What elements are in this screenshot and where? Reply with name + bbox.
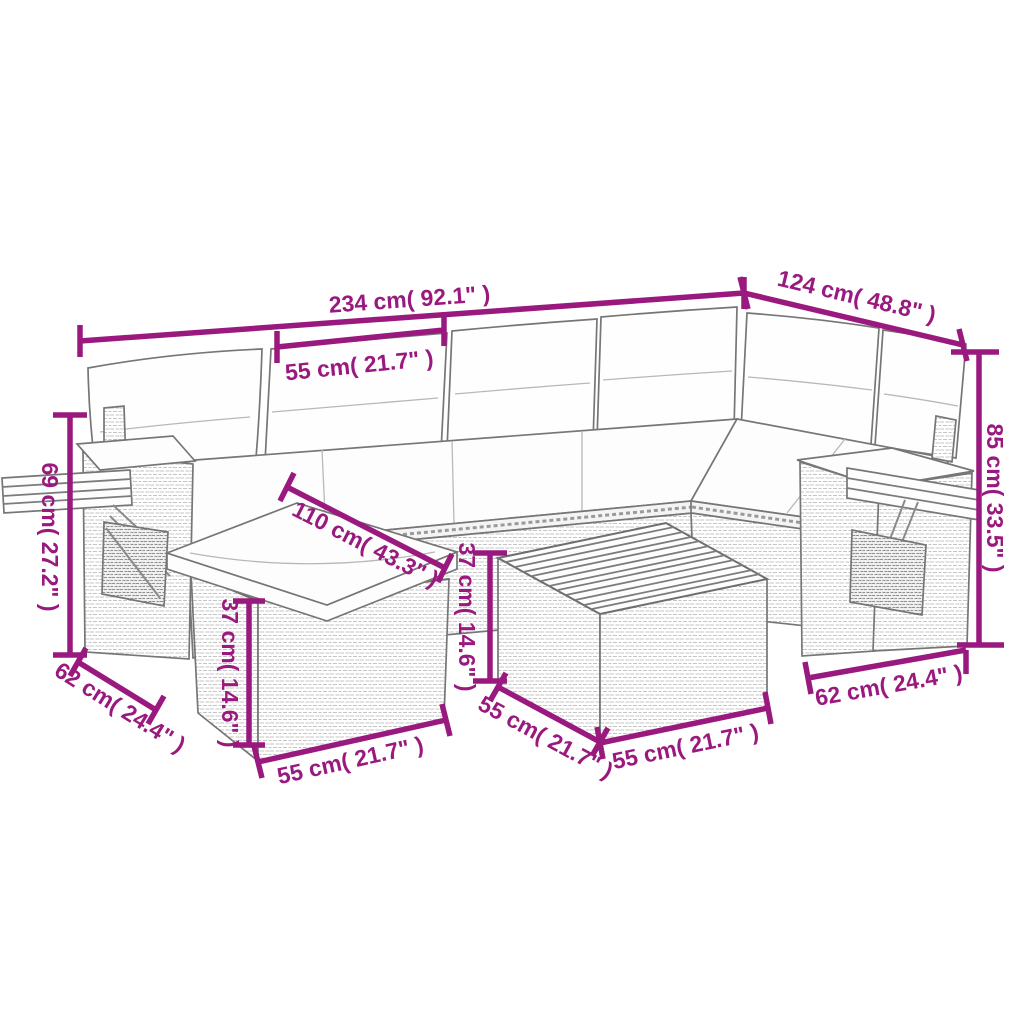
furniture-dimension-diagram: 234 cm( 92.1" ) 55 cm( 21.7" ) 124 cm( 4…: [0, 0, 1024, 1024]
dimension-label: 69 cm( 27.2" ): [37, 463, 63, 612]
footstool: [167, 503, 457, 761]
dimension-label: 37 cm( 14.6" ): [217, 599, 243, 748]
dimension-diagram-page: 234 cm( 92.1" ) 55 cm( 21.7" ) 124 cm( 4…: [0, 0, 1024, 1024]
dimension-label: 37 cm( 14.6" ): [454, 543, 480, 692]
right-armrest-pocket: [850, 530, 926, 615]
right-armrest-post: [932, 416, 956, 462]
dimension-label: 85 cm( 33.5" ): [982, 424, 1008, 573]
